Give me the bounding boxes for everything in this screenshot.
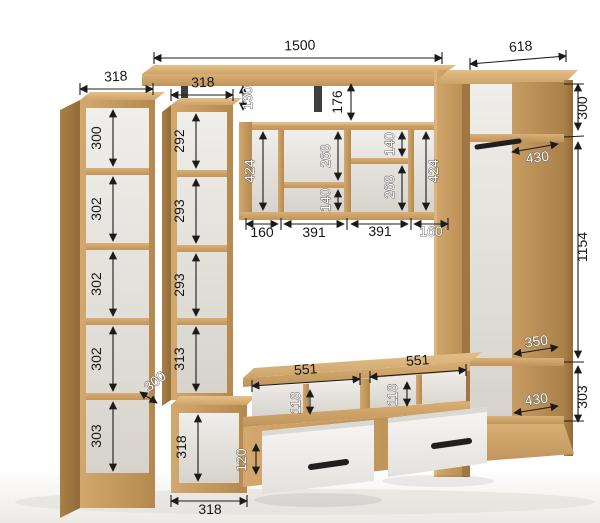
dim-wardrobe-upper-height: 300: [574, 96, 590, 120]
dim-col-b-lower-width: 318: [198, 501, 222, 517]
dim-col-b-cell-0: 292: [171, 129, 187, 153]
dim-col-b-cell-1: 293: [171, 199, 187, 223]
dim-stand-niche-height-1: 118: [384, 384, 400, 407]
drawer-shadow: [254, 493, 382, 507]
dim-col-a-cell-0: 300: [88, 126, 104, 150]
dim-center-side-right: 424: [425, 159, 441, 183]
dim-col-a-cell-2: 302: [88, 272, 104, 296]
shelf-support-mid: [314, 86, 322, 112]
dim-wardrobe-middle-height: 1154: [574, 232, 590, 262]
back-panel: [470, 84, 512, 416]
dim-col-a-cell-1: 302: [88, 197, 104, 221]
dim-col-b-width: 318: [191, 74, 215, 91]
shelf: [177, 170, 227, 177]
dim-wardrobe-lower-depth: 430: [524, 389, 550, 408]
dim-wardrobe-lower-height: 303: [574, 385, 590, 409]
drawer-shadow: [382, 475, 494, 487]
dim-top-shelf-length: 1500: [284, 36, 316, 53]
dim-center-bottom-0: 160: [250, 224, 274, 240]
dim-center-left-lower: 140: [317, 188, 333, 212]
dim-stand-niche-1: 551: [405, 351, 430, 369]
dim-stand-niche-height-0: 118: [287, 392, 303, 415]
dim-col-a-cell-4: 303: [88, 424, 104, 448]
shelf: [86, 318, 149, 325]
shelf: [86, 168, 149, 175]
wardrobe-mid-shelf: [470, 358, 564, 366]
dim-gap-left: 130: [239, 86, 255, 110]
furniture-assembly-diagram: 318 318 1500 130 176 300 302 302 302 303…: [0, 0, 600, 523]
dim-center-left-upper: 268: [317, 144, 333, 168]
dim-stand-drawer-front: 120: [233, 448, 249, 472]
dim-center-bottom-2: 391: [368, 223, 392, 239]
drawer-left: [262, 420, 374, 494]
shelf: [86, 393, 149, 400]
dim-col-a-cell-3: 302: [88, 347, 104, 371]
dim-col-a-width: 318: [104, 67, 128, 84]
dim-col-b-cell-3: 313: [171, 347, 187, 371]
dim-center-side-left: 424: [241, 159, 257, 183]
dim-center-bottom-1: 391: [302, 224, 326, 240]
shelf: [177, 318, 227, 325]
furniture-diagram-canvas: 318 318 1500 130 176 300 302 302 302 303…: [0, 0, 600, 523]
dim-wardrobe-shelf-depth: 350: [524, 331, 550, 350]
dim-center-right-upper: 140: [381, 132, 397, 156]
dim-stand-niche-0: 551: [293, 360, 318, 378]
shelf: [351, 158, 408, 164]
dim-col-b-cell-2: 293: [171, 273, 187, 297]
dim-center-right-lower: 268: [381, 175, 397, 199]
dim-wardrobe-upper-depth: 430: [525, 148, 550, 167]
shelf: [284, 182, 344, 188]
shelf: [86, 243, 149, 250]
shelf: [177, 245, 227, 252]
dim-gap-mid: 176: [329, 90, 345, 114]
dim-wardrobe-width: 618: [508, 37, 533, 55]
dim-col-b-lower-cell: 318: [173, 435, 189, 459]
dim-center-bottom-3: 160: [419, 223, 443, 239]
